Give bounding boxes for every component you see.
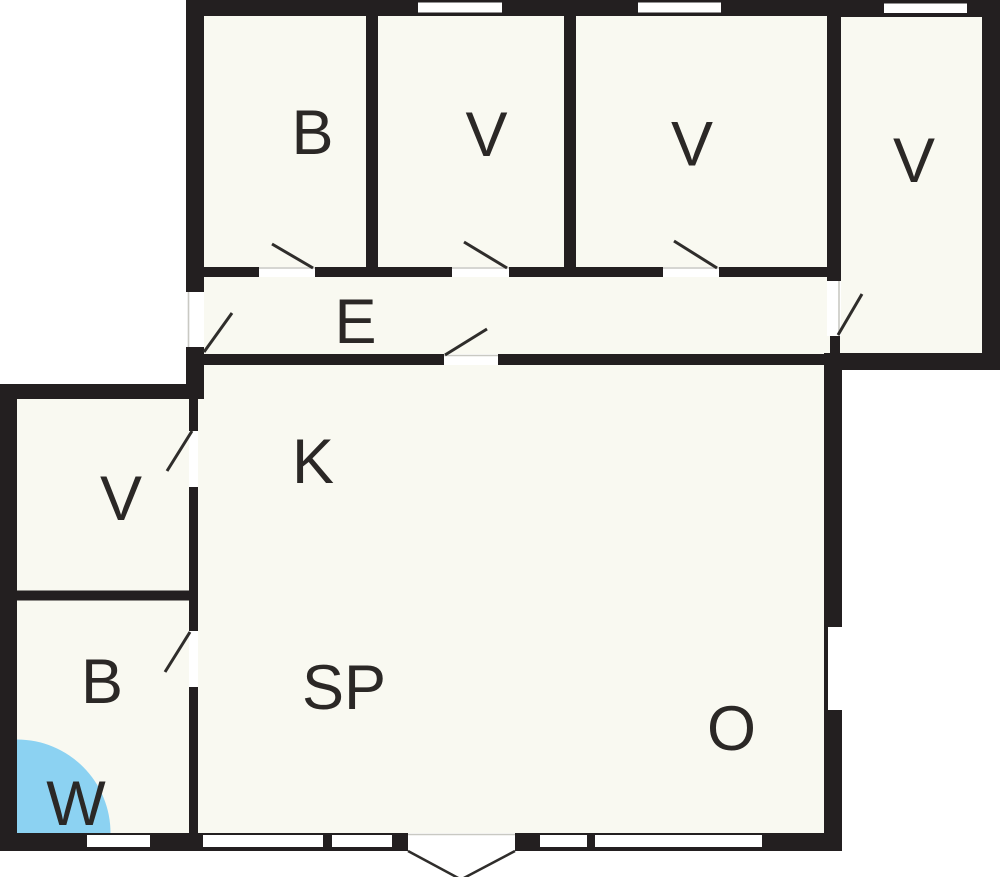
svg-text:E: E (334, 287, 376, 357)
svg-text:B: B (81, 647, 123, 717)
svg-text:SP: SP (302, 653, 386, 723)
svg-text:V: V (893, 126, 935, 196)
svg-text:V: V (671, 110, 713, 180)
svg-text:O: O (707, 694, 756, 764)
svg-text:V: V (465, 100, 507, 170)
svg-text:B: B (291, 98, 333, 168)
svg-text:W: W (46, 769, 106, 839)
svg-text:V: V (100, 464, 142, 534)
svg-text:K: K (292, 427, 334, 497)
